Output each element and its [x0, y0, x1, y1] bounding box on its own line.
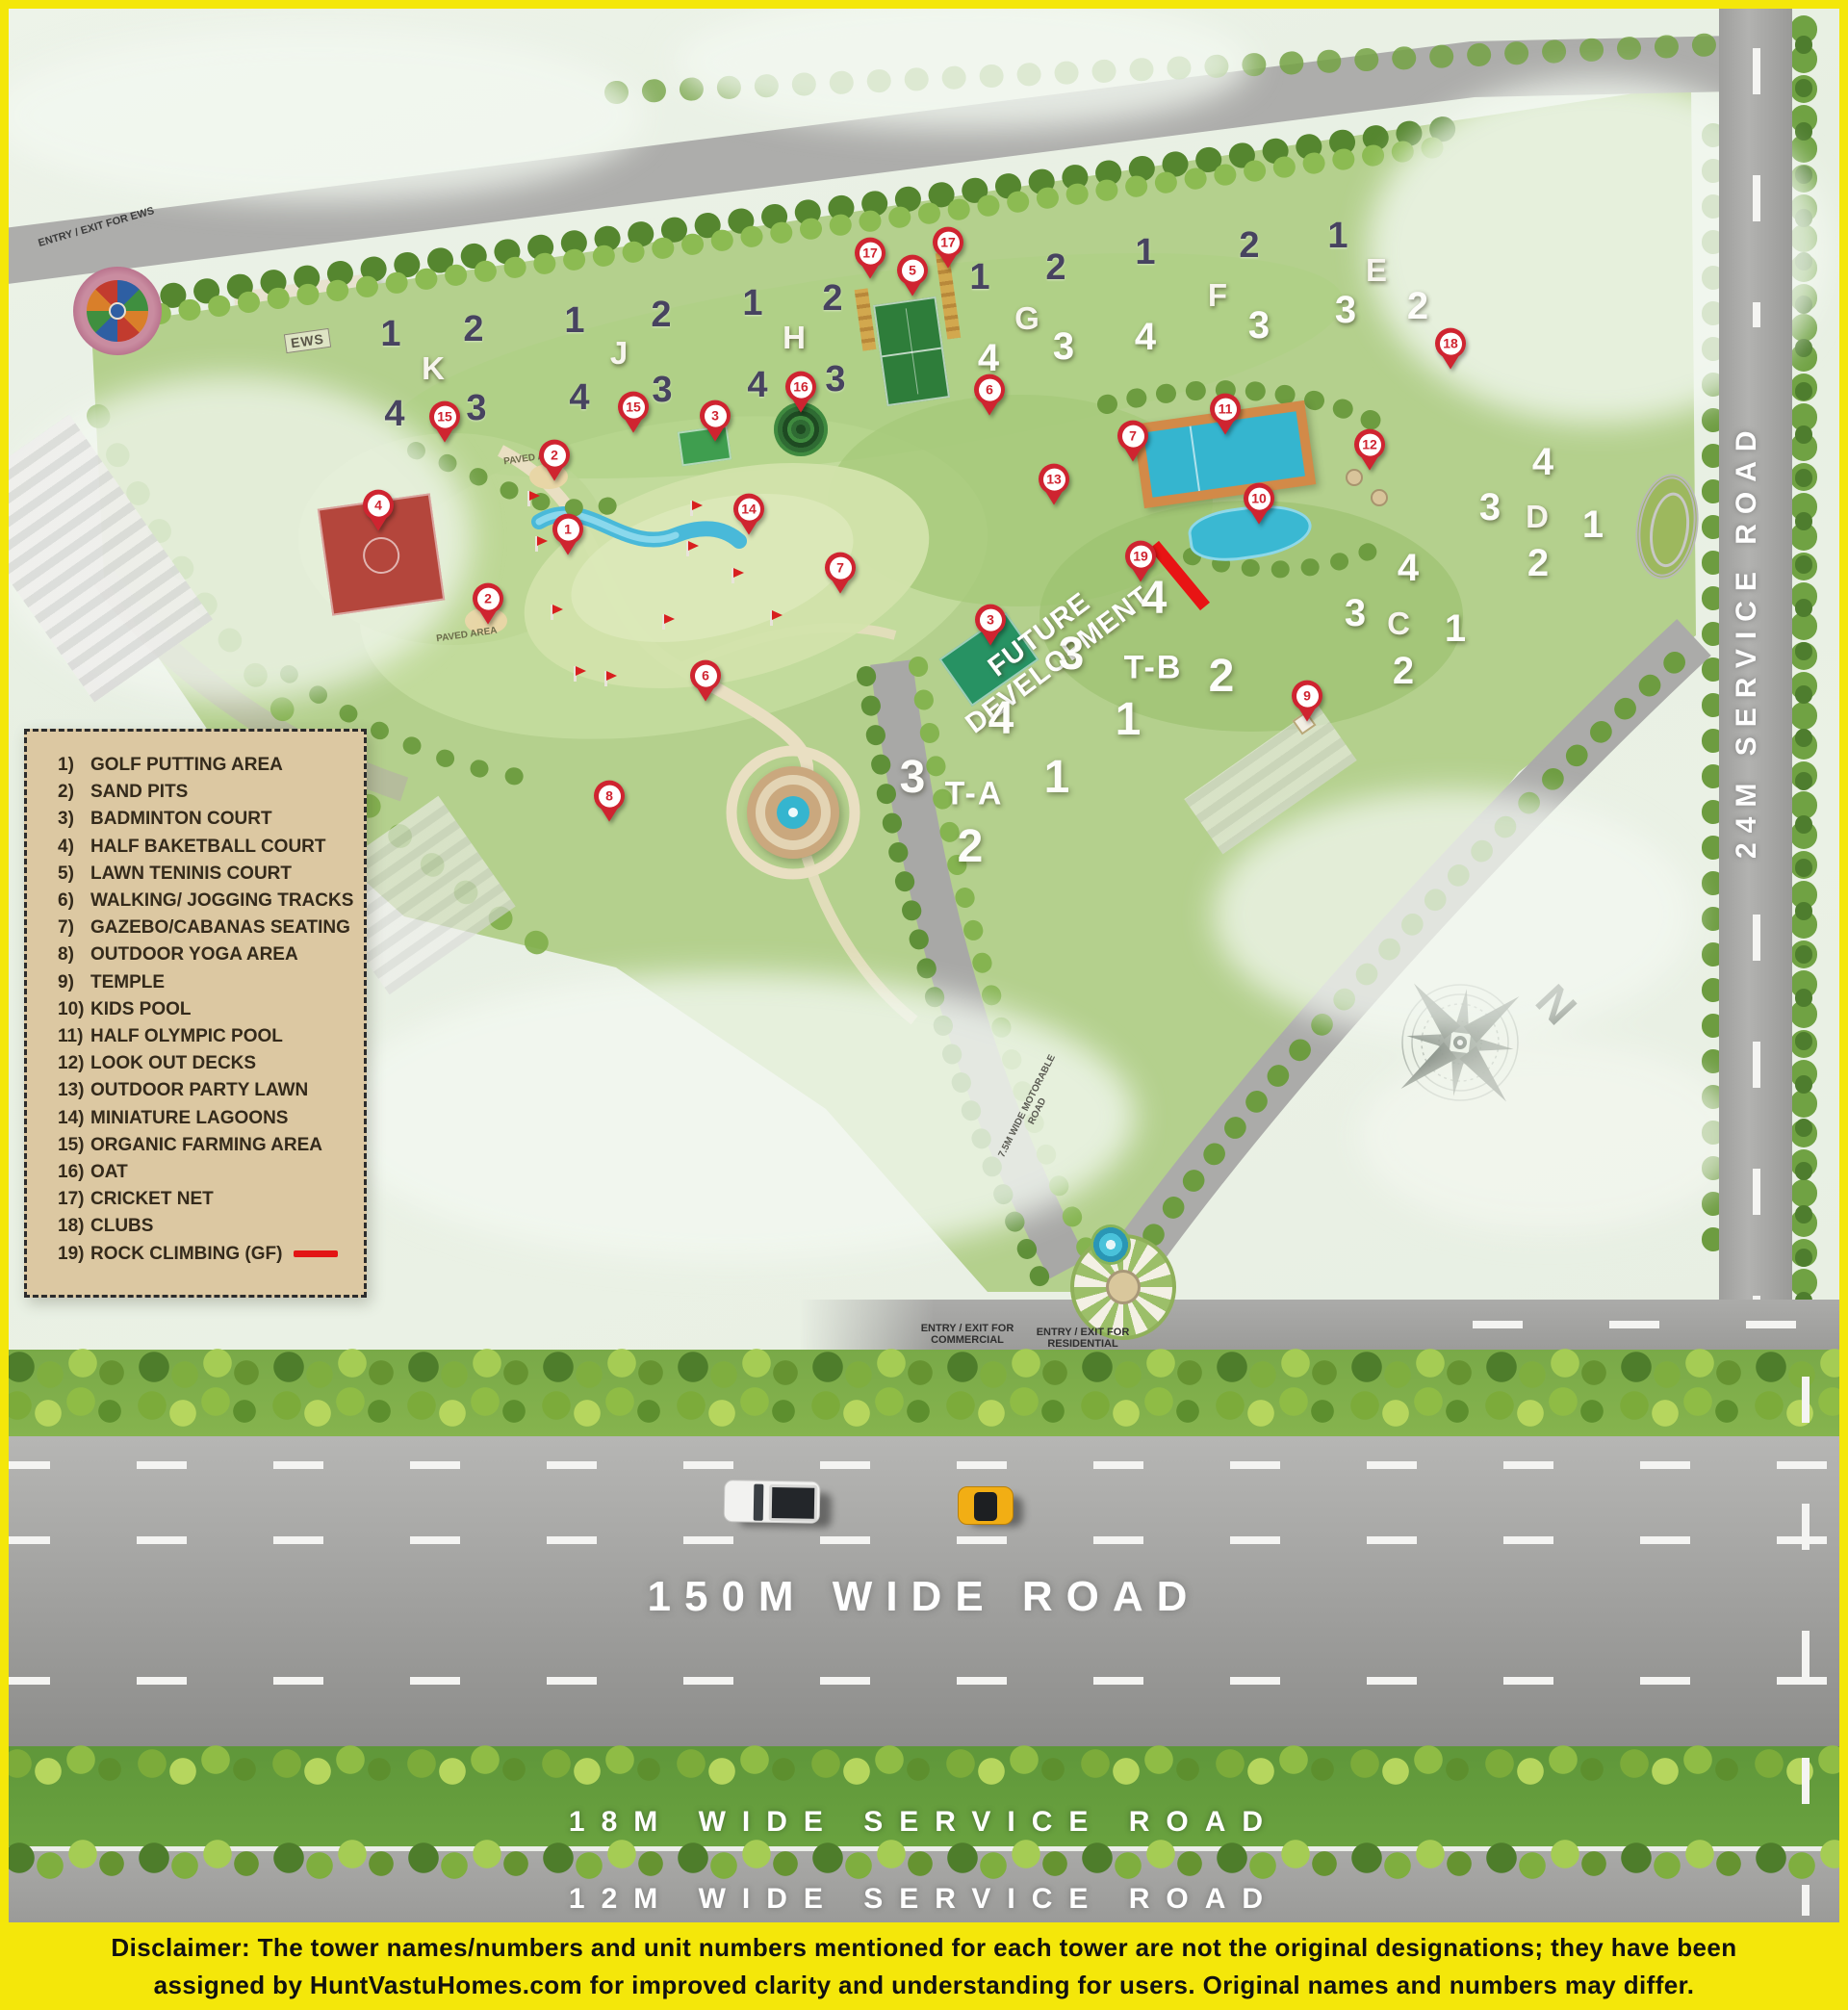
amenity-marker-6: 6 — [689, 660, 722, 707]
unit-number: 2 — [1527, 544, 1549, 582]
entry-exit-commercial-label: ENTRY / EXIT FOR COMMERCIAL — [903, 1323, 1032, 1346]
legend-item-number: 4) — [58, 834, 90, 861]
tower-letter-D: D — [1526, 499, 1549, 535]
unit-number: 3 — [466, 390, 486, 426]
unit-number: 2 — [651, 296, 671, 333]
tree-row — [0, 1384, 1848, 1436]
legend-item-number: 18) — [58, 1213, 90, 1240]
unit-number: 1 — [380, 316, 400, 352]
legend-item: 17)CRICKET NET — [58, 1186, 364, 1213]
golf-flag-icon — [686, 541, 689, 556]
entry-exit-residential-label: ENTRY / EXIT FOR RESIDENTIAL — [1018, 1327, 1147, 1350]
legend-item-label: GOLF PUTTING AREA — [90, 755, 283, 775]
unit-number: 3 — [1335, 291, 1356, 329]
marker-pin-icon: 17 — [855, 238, 885, 269]
unit-number: 1 — [969, 259, 989, 296]
unit-number: 4 — [1532, 443, 1553, 481]
marker-number: 2 — [551, 449, 558, 462]
legend-item: 9)TEMPLE — [58, 969, 364, 996]
marker-pin-icon: 10 — [1244, 483, 1274, 514]
unit-number: 3 — [1479, 488, 1501, 527]
legend-item-number: 15) — [58, 1132, 90, 1159]
unit-number: 2 — [1209, 654, 1235, 700]
marker-pin-icon: 4 — [363, 490, 394, 521]
tree-row — [0, 1835, 1848, 1883]
white-truck — [724, 1480, 827, 1530]
unit-number: 2 — [463, 311, 483, 348]
marker-number: 2 — [484, 592, 492, 606]
amenity-marker-17: 17 — [932, 227, 964, 273]
legend-items: 1)GOLF PUTTING AREA2)SAND PITS3)BADMINTO… — [58, 752, 364, 1268]
marker-pin-icon: 1 — [552, 514, 583, 545]
unit-number: 3 — [1345, 594, 1366, 632]
marker-number: 6 — [986, 383, 993, 397]
unit-number: 4 — [569, 379, 589, 416]
unit-number: 4 — [384, 396, 404, 432]
legend-item: 10)KIDS POOL — [58, 996, 364, 1023]
marker-number: 15 — [626, 400, 641, 414]
marker-number: 3 — [987, 613, 994, 627]
road-18m-label: 18M WIDE SERVICE ROAD — [0, 1806, 1848, 1839]
legend-item-number: 5) — [58, 861, 90, 888]
amenity-marker-11: 11 — [1209, 394, 1242, 440]
marker-pin-icon: 2 — [473, 583, 503, 614]
marker-number: 17 — [940, 236, 956, 249]
unit-number: 3 — [1248, 306, 1270, 345]
golf-flag-icon — [690, 501, 693, 516]
legend-item-label: HALF OLYMPIC POOL — [90, 1026, 283, 1046]
marker-pin-icon: 6 — [974, 374, 1005, 405]
marker-pin-icon: 5 — [897, 255, 928, 286]
tower-letter-C: C — [1387, 606, 1410, 642]
marker-pin-icon: 17 — [933, 227, 963, 258]
legend-item: 6)WALKING/ JOGGING TRACKS — [58, 888, 364, 915]
legend-item-number: 14) — [58, 1105, 90, 1132]
legend-item-label: OUTDOOR PARTY LAWN — [90, 1080, 308, 1100]
amenity-marker-17: 17 — [854, 238, 886, 284]
marker-number: 17 — [862, 246, 878, 260]
tower-name-T-A: T-A — [945, 776, 1004, 813]
legend-item-label: CLUBS — [90, 1216, 153, 1236]
unit-number: 1 — [1044, 755, 1070, 801]
amenity-marker-9: 9 — [1291, 681, 1323, 727]
amenity-marker-19: 19 — [1124, 541, 1157, 587]
marker-number: 6 — [702, 669, 709, 683]
unit-number: 1 — [1135, 234, 1155, 271]
tower-letter-G: G — [1014, 300, 1039, 337]
marker-number: 7 — [836, 561, 844, 575]
legend-item-number: 7) — [58, 915, 90, 941]
road-dashes — [1753, 915, 1760, 1309]
legend-item: 15)ORGANIC FARMING AREA — [58, 1132, 364, 1159]
legend-item-number: 10) — [58, 996, 90, 1023]
amenity-marker-15: 15 — [428, 401, 461, 448]
amenity-marker-4: 4 — [362, 490, 395, 536]
amenity-marker-13: 13 — [1038, 464, 1070, 510]
legend-item: 18)CLUBS — [58, 1213, 364, 1240]
tower-name-T-B: T-B — [1124, 650, 1183, 687]
amenity-marker-16: 16 — [784, 372, 817, 418]
unit-number: 4 — [1135, 318, 1156, 356]
fountain-plaza — [747, 766, 839, 859]
marker-number: 10 — [1251, 492, 1267, 505]
marker-pin-icon: 3 — [975, 605, 1006, 635]
legend-item-label: MINIATURE LAGOONS — [90, 1108, 288, 1128]
legend-item-label: LOOK OUT DECKS — [90, 1053, 256, 1073]
unit-number: 4 — [988, 696, 1014, 742]
mandala-plaza — [73, 267, 162, 355]
amenity-marker-3: 3 — [699, 400, 731, 447]
marker-pin-icon: 9 — [1292, 681, 1322, 711]
marker-pin-icon: 7 — [825, 553, 856, 583]
golf-flag-icon — [731, 568, 734, 583]
marker-number: 4 — [374, 499, 382, 512]
marker-pin-icon: 12 — [1354, 429, 1385, 460]
marker-number: 3 — [711, 409, 719, 423]
unit-number: 1 — [1327, 218, 1347, 254]
marker-pin-icon: 6 — [690, 660, 721, 691]
legend-item: 8)OUTDOOR YOGA AREA — [58, 941, 364, 968]
legend-item-number: 12) — [58, 1050, 90, 1077]
legend-item-label: CRICKET NET — [90, 1189, 214, 1209]
marker-pin-icon: 14 — [733, 494, 764, 525]
amenity-marker-5: 5 — [896, 255, 929, 301]
legend-item-number: 9) — [58, 969, 90, 996]
unit-number: 1 — [742, 285, 762, 322]
amenity-marker-7: 7 — [824, 553, 857, 599]
marker-number: 13 — [1046, 473, 1062, 486]
legend-item-number: 6) — [58, 888, 90, 915]
amenity-marker-10: 10 — [1243, 483, 1275, 529]
marker-pin-icon: 11 — [1210, 394, 1241, 425]
marker-number: 18 — [1443, 337, 1458, 350]
legend-item-label: WALKING/ JOGGING TRACKS — [90, 890, 353, 911]
legend-item: 2)SAND PITS — [58, 779, 364, 806]
unit-number: 4 — [747, 367, 767, 403]
tower-letter-F: F — [1208, 277, 1227, 314]
legend-item-number: 13) — [58, 1077, 90, 1104]
amenity-marker-14: 14 — [732, 494, 765, 540]
golf-flag-icon — [574, 666, 577, 682]
amenity-marker-3: 3 — [974, 605, 1007, 651]
legend-item-label: OAT — [90, 1162, 128, 1182]
unit-number: 1 — [1445, 609, 1466, 648]
amenity-marker-2: 2 — [538, 440, 571, 486]
marker-number: 14 — [741, 502, 757, 516]
amenity-marker-12: 12 — [1353, 429, 1386, 476]
legend-item: 4)HALF BAKETBALL COURT — [58, 834, 364, 861]
marker-number: 16 — [793, 380, 808, 394]
legend-item: 5)LAWN TENINIS COURT — [58, 861, 364, 888]
lane-dashes — [0, 1461, 1848, 1469]
service-road-24m-label: 24M SERVICE ROAD — [1731, 332, 1783, 948]
legend-item-number: 16) — [58, 1159, 90, 1186]
marker-number: 5 — [909, 264, 916, 277]
road-12m-label: 12M WIDE SERVICE ROAD — [0, 1883, 1848, 1916]
unit-number: 2 — [1239, 227, 1259, 264]
amenity-marker-7: 7 — [1116, 421, 1149, 467]
legend-item-label: ORGANIC FARMING AREA — [90, 1135, 322, 1155]
unit-number: 2 — [1393, 652, 1414, 690]
legend-item-label: ROCK CLIMBING (GF) — [90, 1244, 282, 1264]
entry-fountain — [1091, 1224, 1131, 1265]
unit-number: 3 — [1059, 631, 1085, 678]
legend-item-label: HALF BAKETBALL COURT — [90, 837, 326, 857]
unit-number: 1 — [1116, 697, 1142, 743]
marker-pin-icon: 18 — [1435, 328, 1466, 359]
legend-item: 19)ROCK CLIMBING (GF) — [58, 1241, 364, 1268]
lane-dashes — [0, 1536, 1848, 1544]
legend-item: 14)MINIATURE LAGOONS — [58, 1105, 364, 1132]
legend-item: 7)GAZEBO/CABANAS SEATING — [58, 915, 364, 941]
tower-letter-H: H — [783, 320, 806, 356]
legend-item-number: 11) — [58, 1023, 90, 1050]
tower-letter-E: E — [1366, 252, 1387, 289]
golf-flag-icon — [770, 610, 773, 626]
unit-number: 2 — [1045, 249, 1065, 286]
unit-number: 3 — [652, 372, 672, 408]
disclaimer-text: Disclaimer: The tower names/numbers and … — [0, 1929, 1848, 2004]
legend-item: 11)HALF OLYMPIC POOL — [58, 1023, 364, 1050]
amenity-marker-6: 6 — [973, 374, 1006, 421]
marker-number: 11 — [1219, 402, 1233, 416]
amenity-marker-2: 2 — [472, 583, 504, 630]
marker-number: 19 — [1133, 550, 1148, 563]
legend-item-label: BADMINTON COURT — [90, 809, 272, 829]
lane-dashes — [0, 1677, 1848, 1685]
golf-flag-icon — [527, 491, 530, 506]
unit-number: 3 — [900, 755, 926, 801]
tower-letter-K: K — [422, 350, 445, 387]
marker-pin-icon: 3 — [700, 400, 731, 431]
unit-number: 4 — [1398, 549, 1419, 587]
marker-number: 12 — [1362, 438, 1377, 451]
disclaimer-bar: Disclaimer: The tower names/numbers and … — [0, 1922, 1848, 2010]
marker-pin-icon: 16 — [785, 372, 816, 402]
legend-item-number: 19) — [58, 1241, 90, 1268]
legend-item-label: GAZEBO/CABANAS SEATING — [90, 917, 350, 938]
unit-number: 4 — [978, 339, 999, 377]
amenity-marker-1: 1 — [552, 514, 584, 560]
tree-row — [0, 1742, 1848, 1796]
unit-number: 3 — [1053, 327, 1074, 366]
golf-flag-icon — [551, 605, 553, 620]
unit-number: 1 — [1582, 505, 1604, 544]
legend-item: 3)BADMINTON COURT — [58, 806, 364, 833]
legend-item: 1)GOLF PUTTING AREA — [58, 752, 364, 779]
road-150m-label: 150M WIDE ROAD — [0, 1573, 1848, 1621]
tower-letter-J: J — [610, 335, 628, 372]
legend-item-number: 1) — [58, 752, 90, 779]
unit-number: 2 — [822, 280, 842, 317]
marker-pin-icon: 19 — [1125, 541, 1156, 572]
road-150m: 150M WIDE ROAD — [0, 1436, 1848, 1746]
legend-item-label: SAND PITS — [90, 782, 188, 802]
amenity-marker-18: 18 — [1434, 328, 1467, 374]
marker-pin-icon: 8 — [594, 781, 625, 812]
legend-item: 12)LOOK OUT DECKS — [58, 1050, 364, 1077]
unit-number: 2 — [958, 824, 984, 870]
legend-item-label: KIDS POOL — [90, 999, 192, 1019]
legend-item-number: 17) — [58, 1186, 90, 1213]
golf-flag-icon — [604, 671, 607, 686]
yellow-car — [958, 1486, 1017, 1529]
golf-flag-icon — [535, 536, 538, 552]
legend-item: 13)OUTDOOR PARTY LAWN — [58, 1077, 364, 1104]
legend-item: 16)OAT — [58, 1159, 364, 1186]
marker-pin-icon: 2 — [539, 440, 570, 471]
legend-item-number: 8) — [58, 941, 90, 968]
legend-item-label: TEMPLE — [90, 972, 165, 992]
amenity-marker-15: 15 — [617, 392, 650, 438]
marker-number: 1 — [564, 523, 572, 536]
marker-number: 7 — [1129, 429, 1137, 443]
unit-number: 3 — [825, 361, 845, 398]
unit-number: 1 — [564, 302, 584, 339]
legend-box: 1)GOLF PUTTING AREA2)SAND PITS3)BADMINTO… — [24, 729, 367, 1298]
unit-number: 2 — [1407, 287, 1428, 325]
golf-flag-icon — [662, 614, 665, 630]
road-dashes — [1753, 48, 1760, 327]
legend-item-number: 3) — [58, 806, 90, 833]
marker-number: 9 — [1303, 689, 1311, 703]
legend-item-number: 2) — [58, 779, 90, 806]
marker-pin-icon: 15 — [429, 401, 460, 432]
marker-pin-icon: 7 — [1117, 421, 1148, 451]
marker-pin-icon: 13 — [1039, 464, 1069, 495]
rock-climbing-swatch-icon — [294, 1250, 338, 1257]
site-plan: N — [0, 0, 1848, 2010]
marker-number: 15 — [437, 410, 452, 424]
amenity-marker-8: 8 — [593, 781, 626, 827]
marker-pin-icon: 15 — [618, 392, 649, 423]
legend-item-label: LAWN TENINIS COURT — [90, 863, 292, 884]
legend-item-label: OUTDOOR YOGA AREA — [90, 944, 298, 965]
lookout-deck — [1371, 489, 1388, 506]
marker-number: 8 — [605, 789, 613, 803]
